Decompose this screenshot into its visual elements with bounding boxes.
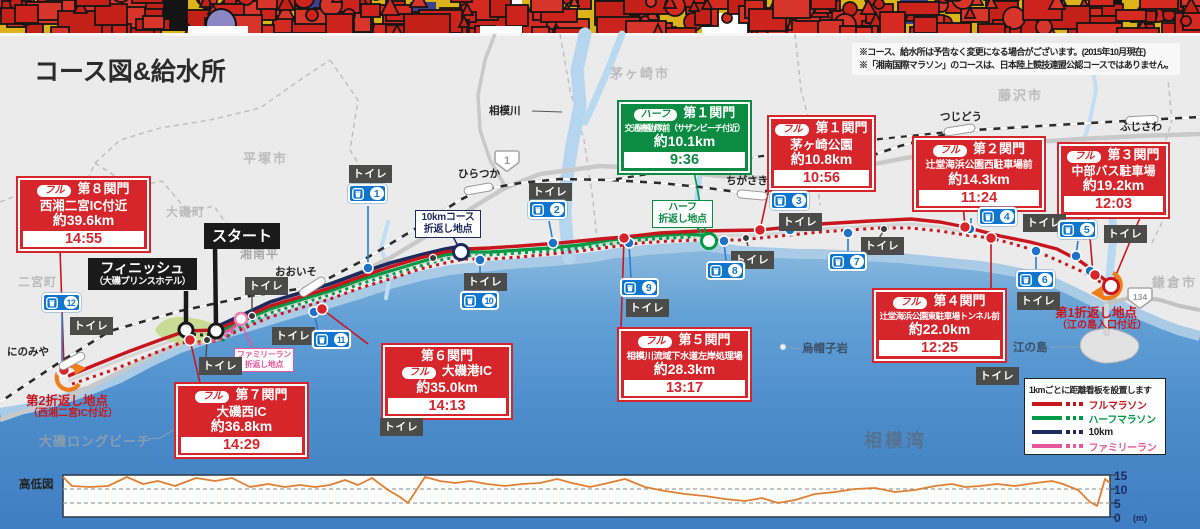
svg-text:134: 134 bbox=[1133, 292, 1147, 302]
svg-text:1: 1 bbox=[504, 155, 510, 167]
